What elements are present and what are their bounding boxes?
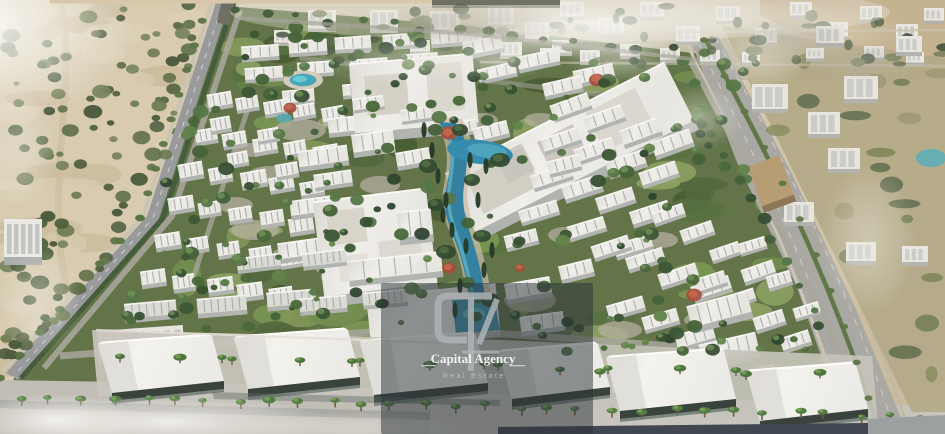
svg-text:Capital Agency: Capital Agency	[431, 351, 516, 366]
svg-text:Real Estate: Real Estate	[443, 371, 506, 380]
